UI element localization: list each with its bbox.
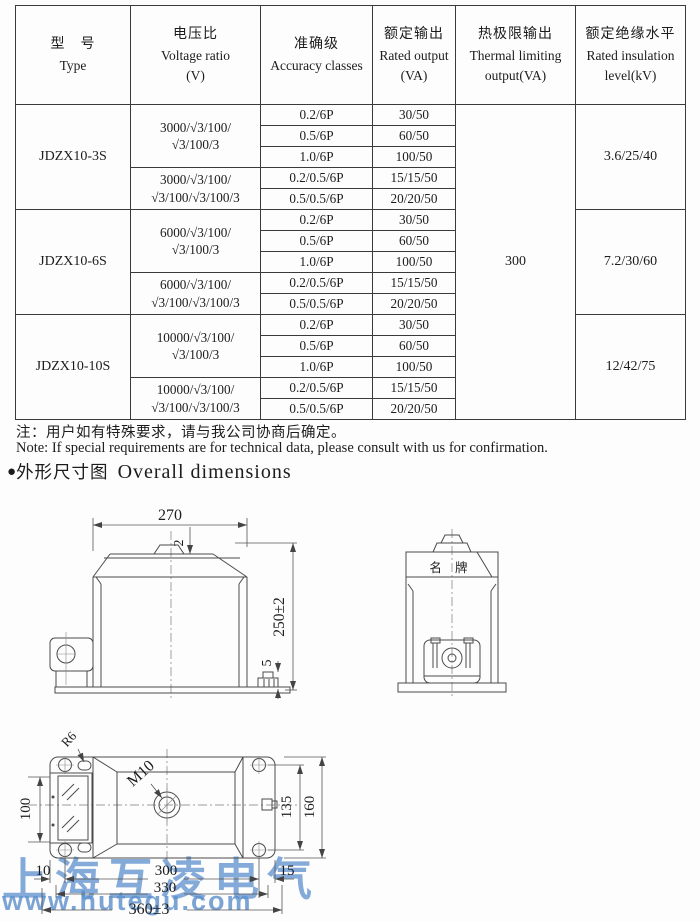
thread-label: M10 [124,757,158,790]
accuracy-cell: 0.5/0.5/6P [261,399,373,420]
dim-width-label: 270 [158,507,182,524]
col-header-thermal: 热极限输出 Thermal limiting output(VA) [456,6,576,105]
table-row: JDZX10-6S 6000/√3/100/ √3/100/3 0.2/6P 3… [16,210,686,231]
header-type-en: Type [16,56,130,76]
header-ratio-en: Voltage ratio [131,46,260,66]
output-cell: 15/15/50 [373,378,456,399]
label-m10: M10 [124,757,162,798]
spec-table: 型 号 Type 电压比 Voltage ratio (V) 准确级 Accur… [15,5,686,420]
ratio-line: √3/100/3 [131,241,260,258]
accuracy-cell: 0.5/6P [261,126,373,147]
accuracy-cell: 0.5/0.5/6P [261,189,373,210]
ratio-line: √3/100/√3/100/3 [131,189,260,206]
section-title-cn: 外形尺寸图 [16,462,109,482]
ratio-cell: 10000/√3/100/ √3/100/3 [131,315,261,378]
output-cell: 60/50 [373,231,456,252]
header-insulation-unit: level(kV) [576,66,685,86]
ratio-cell: 6000/√3/100/ √3/100/3 [131,210,261,273]
ratio-line: 3000/√3/100/ [131,119,260,136]
dim-holes-h-label: 300 [155,863,178,879]
header-output-unit: (VA) [373,66,455,86]
catalog-page: 型 号 Type 电压比 Voltage ratio (V) 准确级 Accur… [0,0,700,921]
output-cell: 20/20/50 [373,189,456,210]
dim-250: 250±2 [235,543,297,690]
output-cell: 20/20/50 [373,294,456,315]
front-view: 270 2 [50,507,297,699]
header-insulation-cn: 额定绝缘水平 [576,24,685,46]
table-row: JDZX10-3S 3000/√3/100/ √3/100/3 0.2/6P 3… [16,105,686,126]
output-cell: 100/50 [373,357,456,378]
accuracy-cell: 0.2/0.5/6P [261,273,373,294]
dim-edge-right-label: 15 [280,863,295,879]
header-output-cn: 额定输出 [373,24,455,46]
output-cell: 100/50 [373,147,456,168]
accuracy-cell: 0.2/6P [261,105,373,126]
insulation-cell: 3.6/25/40 [576,105,686,210]
base-bolt [258,672,278,687]
header-ratio-unit: (V) [131,66,260,86]
ratio-cell: 3000/√3/100/ √3/100/√3/100/3 [131,168,261,210]
accuracy-cell: 0.5/6P [261,231,373,252]
accuracy-cell: 0.5/0.5/6P [261,294,373,315]
bottom-view: R6 M10 100 135 [18,728,326,918]
col-header-ratio: 电压比 Voltage ratio (V) [131,6,261,105]
header-type-cn: 型 号 [16,34,130,56]
output-cell: 15/15/50 [373,273,456,294]
output-cell: 100/50 [373,252,456,273]
ratio-line: 10000/√3/100/ [131,381,260,398]
output-cell: 60/50 [373,336,456,357]
ratio-line: 6000/√3/100/ [131,276,260,293]
ratio-cell: 3000/√3/100/ √3/100/3 [131,105,261,168]
accuracy-cell: 0.5/6P [261,336,373,357]
insulation-cell: 12/42/75 [576,315,686,420]
type-cell: JDZX10-6S [16,210,131,315]
accuracy-cell: 0.2/6P [261,210,373,231]
dim-330: 330 [56,880,268,896]
thermal-cell: 300 [456,105,576,420]
dim-10-300-15: 10 300 15 [34,863,295,879]
accuracy-cell: 1.0/6P [261,357,373,378]
accuracy-cell: 0.2/6P [261,315,373,336]
dim-100: 100 [18,777,50,842]
header-ratio-cn: 电压比 [131,24,260,46]
type-cell: JDZX10-10S [16,315,131,420]
ratio-line: 10000/√3/100/ [131,329,260,346]
note-chinese: 注：用户如有特殊要求，请与我公司协商后确定。 [16,421,346,442]
accuracy-cell: 0.2/0.5/6P [261,168,373,189]
output-cell: 60/50 [373,126,456,147]
header-thermal-unit: output(VA) [456,66,575,86]
dim-base-label: 5 [260,660,275,667]
dim-360: 360±3 [42,901,282,918]
ratio-cell: 10000/√3/100/ √3/100/√3/100/3 [131,378,261,420]
overall-dimensions-drawing: 270 2 [0,491,700,921]
dim-holes-v-label: 135 [279,796,295,819]
header-thermal-en: Thermal limiting [456,46,575,66]
nameplate-label: 名 牌 [429,560,472,575]
bullet-icon: ● [7,464,16,480]
dim-right-v-label: 160 [302,796,318,819]
header-output-en: Rated output [373,46,455,66]
output-cell: 30/50 [373,315,456,336]
header-accuracy-en: Accuracy classes [261,56,372,76]
ratio-cell: 6000/√3/100/ √3/100/√3/100/3 [131,273,261,315]
ratio-line: √3/100/3 [131,136,260,153]
ratio-line: √3/100/3 [131,346,260,363]
ratio-line: 3000/√3/100/ [131,171,260,188]
output-cell: 30/50 [373,210,456,231]
col-header-insulation: 额定绝缘水平 Rated insulation level(kV) [576,6,686,105]
mounting-bracket [50,632,93,687]
ratio-line: √3/100/√3/100/3 [131,294,260,311]
header-row: 型 号 Type 电压比 Voltage ratio (V) 准确级 Accur… [16,6,686,105]
output-cell: 15/15/50 [373,168,456,189]
header-accuracy-cn: 准确级 [261,34,372,56]
output-cell: 30/50 [373,105,456,126]
accuracy-cell: 1.0/6P [261,147,373,168]
ratio-line: √3/100/√3/100/3 [131,399,260,416]
header-thermal-cn: 热极限输出 [456,24,575,46]
dim-edge-left-label: 10 [36,863,51,879]
dim-left-label: 100 [18,798,34,821]
header-insulation-en: Rated insulation [576,46,685,66]
terminal-box [50,773,92,843]
col-header-type: 型 号 Type [16,6,131,105]
output-cell: 20/20/50 [373,399,456,420]
body-footprint [93,757,243,858]
table-row: JDZX10-10S 10000/√3/100/ √3/100/3 0.2/6P… [16,315,686,336]
accuracy-cell: 0.2/0.5/6P [261,378,373,399]
col-header-output: 额定输出 Rated output (VA) [373,6,456,105]
dim-height-label: 250±2 [271,597,288,637]
type-cell: JDZX10-3S [16,105,131,210]
dim-270: 270 [93,507,247,551]
dim-mid-label: 330 [154,880,177,896]
section-heading: ●外形尺寸图Overall dimensions [7,459,292,484]
accuracy-cell: 1.0/6P [261,252,373,273]
insulation-cell: 7.2/30/60 [576,210,686,315]
col-header-accuracy: 准确级 Accuracy classes [261,6,373,105]
dim-total-label: 360±3 [129,901,170,918]
section-title-en: Overall dimensions [118,461,292,483]
fillet-label: R6 [58,728,80,750]
dim-bump-label: 2 [172,540,187,547]
ratio-line: 6000/√3/100/ [131,224,260,241]
side-view: 名 牌 [398,529,506,699]
note-english: Note: If special requirements are for te… [16,440,548,457]
